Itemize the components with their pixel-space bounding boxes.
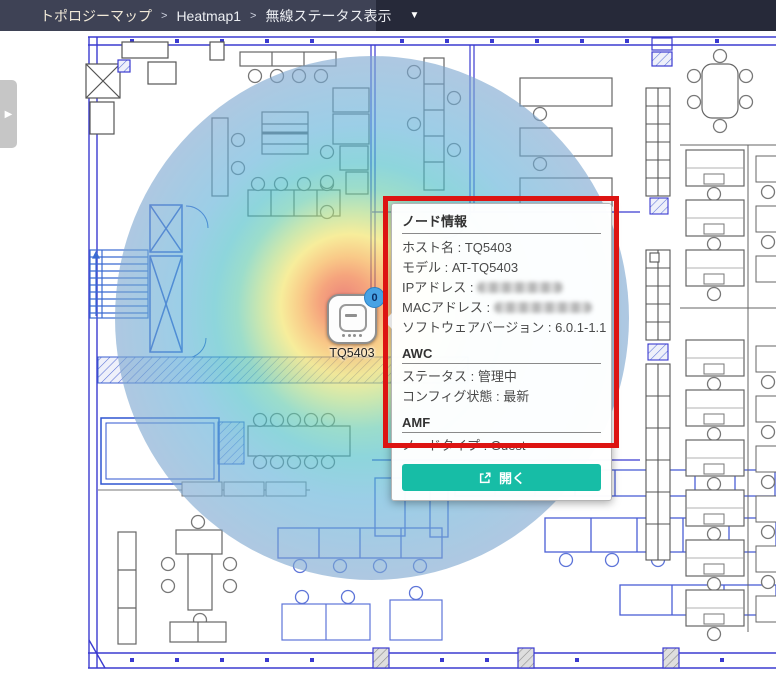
model-row: モデル : AT-TQ5403 bbox=[402, 258, 601, 278]
redacted-ip-value bbox=[477, 282, 563, 293]
popup-title: ノード情報 bbox=[402, 211, 601, 234]
chevron-right-icon: ▶ bbox=[5, 109, 13, 120]
node-info-popup: ノード情報 ホスト名 : TQ5403 モデル : AT-TQ5403 IPアド… bbox=[391, 203, 612, 501]
breadcrumb: トポロジーマップ > Heatmap1 > 無線ステータス表示 ▼ bbox=[0, 0, 376, 31]
heatmap-canvas[interactable] bbox=[0, 0, 776, 683]
floorplan-bottom-columns bbox=[373, 648, 679, 668]
redacted-mac-value bbox=[494, 302, 592, 313]
shelf-columns bbox=[646, 88, 670, 560]
cubicle-rows bbox=[680, 145, 776, 641]
top-bar: トポロジーマップ > Heatmap1 > 無線ステータス表示 ▼ bbox=[0, 0, 776, 31]
breadcrumb-topology-map[interactable]: トポロジーマップ bbox=[40, 6, 152, 26]
mac-address-row: MACアドレス : bbox=[402, 298, 601, 318]
amf-section-title: AMF bbox=[402, 415, 601, 433]
access-point-node[interactable]: 0 TQ5403 bbox=[327, 294, 377, 344]
breadcrumb-separator: > bbox=[161, 10, 167, 22]
open-button[interactable]: 開く bbox=[402, 464, 601, 491]
chevron-down-icon[interactable]: ▼ bbox=[409, 10, 419, 21]
hostname-row: ホスト名 : TQ5403 bbox=[402, 238, 601, 258]
ip-address-row: IPアドレス : bbox=[402, 278, 601, 298]
access-point-label: TQ5403 bbox=[313, 346, 391, 360]
bottom-desks bbox=[282, 587, 442, 641]
open-in-new-icon bbox=[478, 471, 492, 485]
topright-table bbox=[688, 50, 753, 133]
side-panel-expand-tab[interactable]: ▶ bbox=[0, 80, 17, 148]
breakout-furniture bbox=[118, 516, 237, 645]
breadcrumb-wireless-status[interactable]: 無線ステータス表示 bbox=[265, 6, 391, 26]
client-count-badge: 0 bbox=[364, 287, 385, 308]
config-state-row: コンフィグ状態 : 最新 bbox=[402, 387, 601, 407]
node-type-row: ノードタイプ : Guest bbox=[402, 436, 601, 456]
breadcrumb-heatmap1[interactable]: Heatmap1 bbox=[176, 8, 241, 24]
software-version-row: ソフトウェアバージョン : 6.0.1-1.1 bbox=[402, 318, 601, 338]
status-row: ステータス : 管理中 bbox=[402, 367, 601, 387]
awc-section-title: AWC bbox=[402, 346, 601, 364]
breadcrumb-separator: > bbox=[250, 10, 256, 22]
floorplan-topleft-rooms bbox=[86, 42, 224, 134]
floorplan-drawing bbox=[0, 0, 776, 683]
